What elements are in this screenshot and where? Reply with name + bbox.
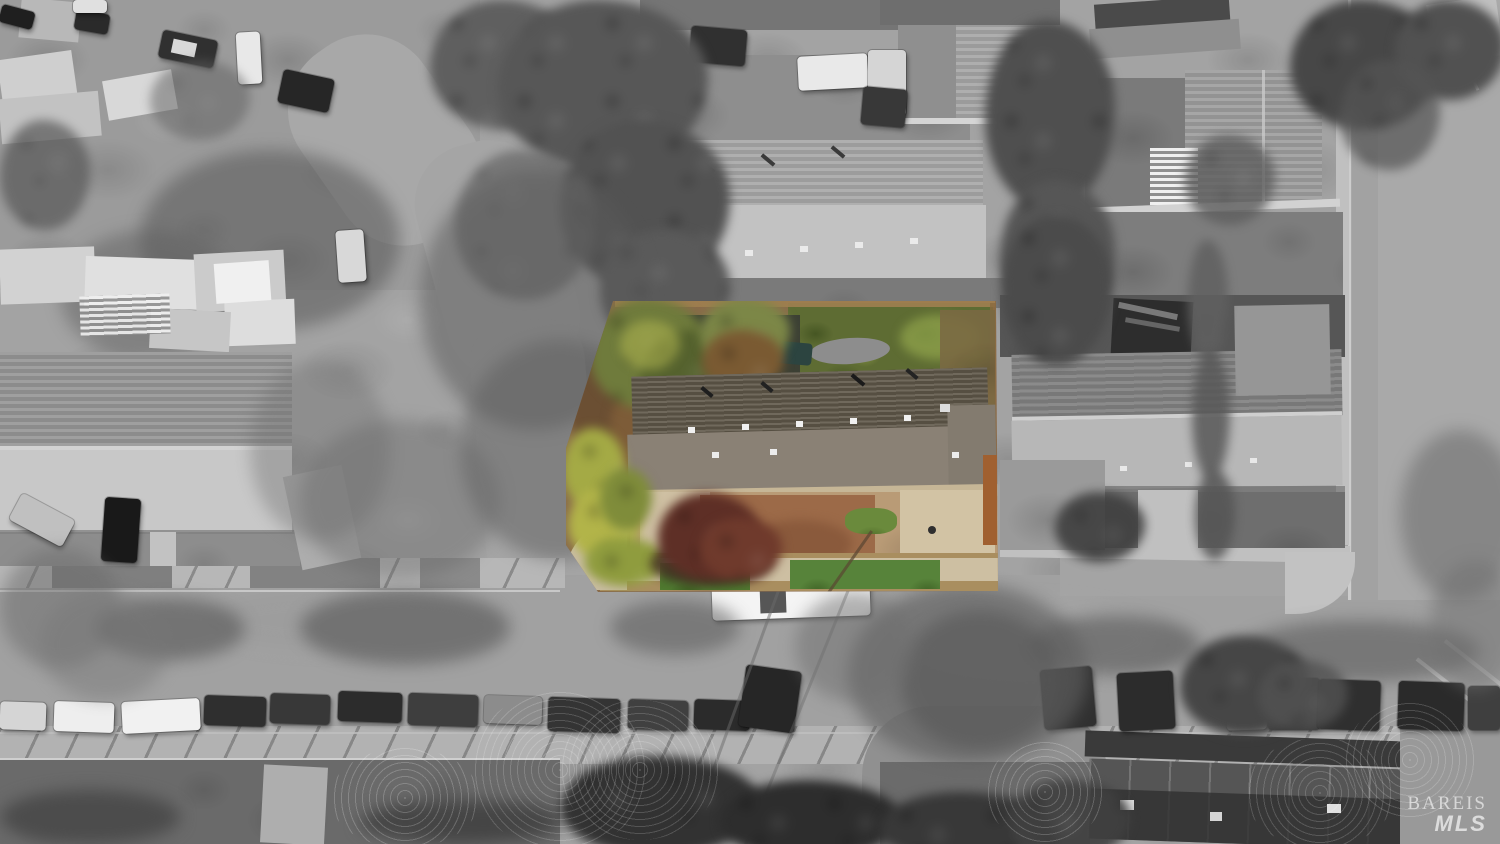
car-lot-white-bus (73, 0, 107, 13)
parked-car-7 (407, 693, 478, 727)
parcel-roof-vent-7 (770, 449, 777, 455)
parked-car-2 (53, 701, 114, 733)
parked-car-3 (121, 698, 201, 734)
parcel-roof-vent-5 (904, 415, 911, 421)
apartment-walkway (150, 532, 176, 566)
vent-dot-2 (745, 250, 753, 256)
parcel-roof-vent-2 (742, 424, 749, 430)
parcel-roof-vent-3 (796, 421, 803, 427)
row-shadow-3 (610, 600, 740, 655)
parcel-pole-base (928, 526, 936, 534)
tree-left-edge-2 (40, 590, 170, 700)
parked-car-6 (337, 691, 402, 723)
parked-car-5 (269, 693, 330, 725)
east-house-gable (1234, 304, 1331, 396)
mobile-cluster-roof-4 (224, 299, 296, 346)
conifer-shadow-2 (900, 610, 1060, 750)
vent-dot-3 (800, 246, 808, 252)
east-vent-2 (1120, 466, 1127, 471)
parcel-roof-vent-1 (688, 427, 695, 433)
garage-roof-dark-half (898, 20, 956, 122)
south-curb (0, 732, 1500, 734)
east-vent-4 (1250, 458, 1257, 463)
bare-tree-4 (985, 742, 1105, 842)
car-apartment-pickup (101, 497, 141, 563)
parked-car-13 (1117, 671, 1176, 732)
bottom-left-path (260, 764, 328, 844)
watermark-mls-icon: MLS (1407, 813, 1487, 835)
parcel-rust-strip (983, 455, 997, 545)
parcel-roof-vent-4 (850, 418, 857, 424)
row-shadow-2 (300, 590, 510, 665)
parcel-ridge-cap (940, 404, 950, 412)
parked-car-1 (0, 701, 46, 731)
car-white-parked-mid (335, 229, 367, 283)
striped-awning (79, 293, 170, 336)
apartment-roof-north (0, 352, 292, 448)
east-vent-3 (1185, 462, 1192, 467)
road-tree-shadow-3 (300, 420, 500, 580)
car-yard-white-pickup (797, 53, 869, 91)
bare-tree-1 (330, 748, 480, 844)
vent-dot-5 (910, 238, 918, 244)
carport-white-2 (1210, 812, 1222, 821)
bare-tree-3 (560, 700, 720, 840)
watermark: BAREIS MLS (1407, 794, 1487, 835)
aerial-photo: BAREIS MLS (0, 0, 1500, 844)
bare-tree-shadow (795, 592, 915, 702)
parked-car-18 (1468, 686, 1500, 730)
bottom-left-lawn-dark-1 (0, 790, 180, 844)
east-driveway (1138, 490, 1198, 558)
white-tent-roof (214, 260, 272, 304)
car-yard-dark (860, 86, 907, 128)
parcel-hedge-right (790, 560, 940, 589)
parcel-roof-vent-6 (712, 452, 719, 458)
top-hedge-strip (640, 0, 920, 30)
parcel-roof-vent-8 (952, 452, 959, 458)
parked-car-4 (203, 695, 266, 727)
vent-dot-4 (855, 242, 863, 248)
